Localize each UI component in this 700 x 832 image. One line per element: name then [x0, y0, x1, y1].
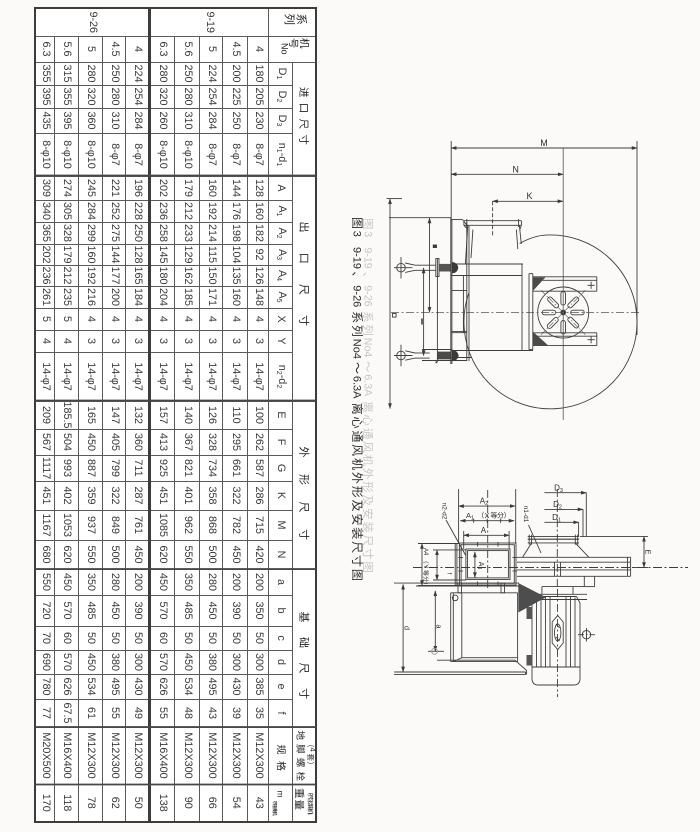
svg-text:3: 3	[361, 231, 373, 237]
svg-text:D3: D3	[554, 483, 563, 494]
svg-text:A1: A1	[466, 511, 474, 522]
svg-text:X: X	[485, 513, 490, 520]
svg-text:A2: A2	[480, 497, 488, 508]
svg-text:m: m	[276, 791, 286, 798]
svg-text:Y: Y	[422, 564, 428, 568]
svg-text:f: f	[445, 573, 451, 575]
svg-text:N: N	[512, 164, 519, 174]
svg-text:6.3A: 6.3A	[361, 374, 373, 397]
svg-text:No4: No4	[351, 339, 363, 359]
svg-text:6.3A: 6.3A	[351, 376, 363, 399]
svg-text:No4: No4	[361, 338, 373, 358]
svg-text:A3: A3	[476, 562, 484, 570]
svg-text:n1-d1: n1-d1	[522, 506, 529, 523]
svg-text:No: No	[280, 43, 290, 55]
svg-text:M: M	[540, 138, 548, 148]
svg-text:d: d	[403, 626, 412, 630]
svg-text:9-19: 9-19	[351, 247, 363, 269]
svg-text:D1: D1	[552, 513, 561, 524]
svg-text:a: a	[435, 624, 444, 629]
svg-text:4: 4	[309, 748, 318, 752]
svg-text:9-26: 9-26	[351, 285, 363, 307]
svg-text:A4: A4	[422, 548, 428, 556]
svg-text:9-19: 9-19	[361, 248, 373, 269]
svg-text:K: K	[526, 191, 532, 201]
svg-text:A: A	[481, 526, 487, 535]
svg-text:n2-d2: n2-d2	[441, 503, 448, 520]
svg-text:3: 3	[351, 231, 363, 237]
svg-text:9-26: 9-26	[361, 285, 373, 306]
svg-text:E: E	[643, 549, 652, 554]
svg-text:E: E	[431, 245, 437, 249]
svg-text:D2: D2	[553, 500, 562, 511]
